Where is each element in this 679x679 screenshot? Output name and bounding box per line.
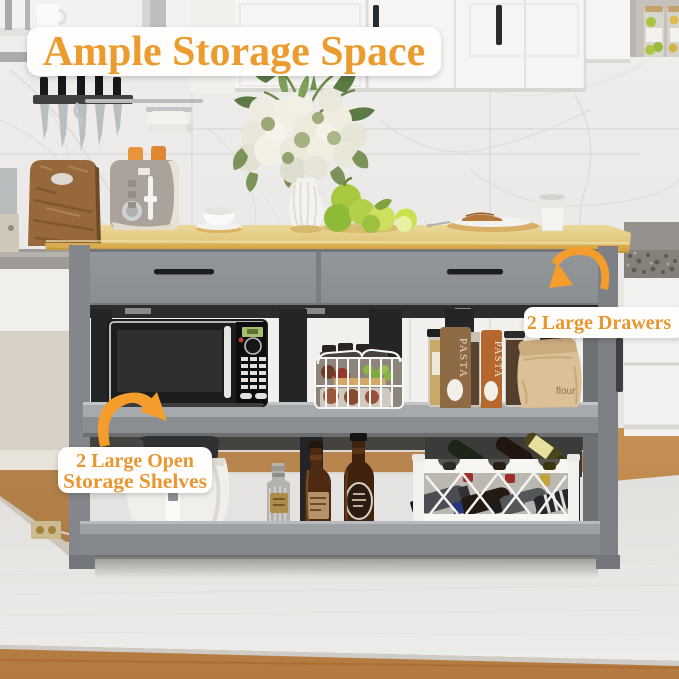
svg-text:2 Large Drawers: 2 Large Drawers	[527, 312, 672, 334]
svg-text:PASTA: PASTA	[457, 338, 469, 378]
svg-text:Ample Storage Space: Ample Storage Space	[43, 29, 426, 75]
svg-text:PASTA: PASTA	[492, 341, 503, 378]
svg-text:flour: flour	[556, 386, 576, 397]
svg-text:Storage Shelves: Storage Shelves	[63, 469, 207, 493]
